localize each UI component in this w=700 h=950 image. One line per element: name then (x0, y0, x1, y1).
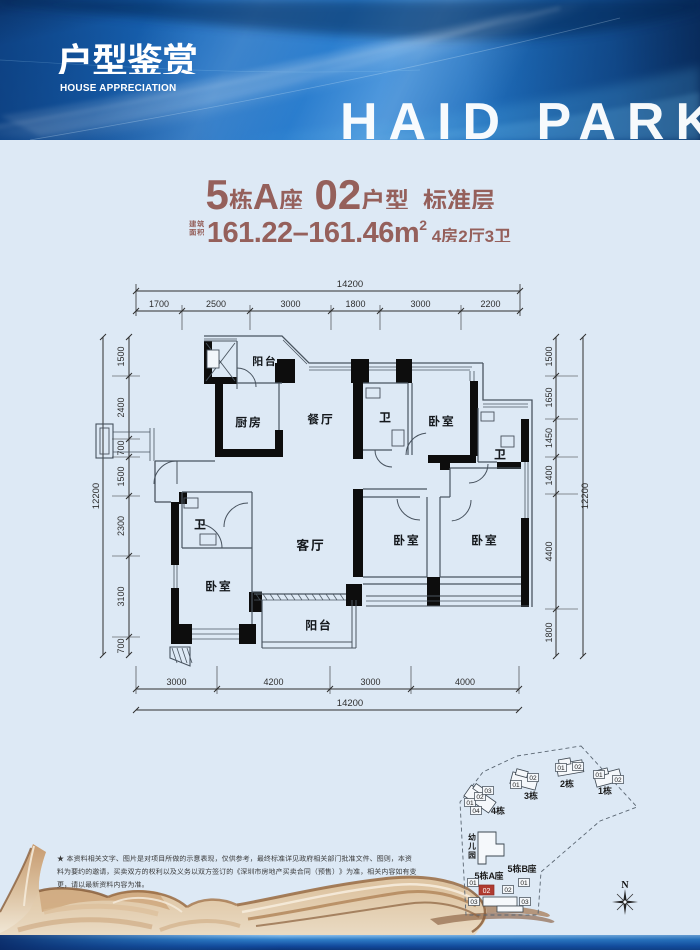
svg-text:3000: 3000 (166, 677, 186, 687)
svg-text:3100: 3100 (116, 586, 126, 606)
svg-text:700: 700 (116, 440, 126, 455)
svg-text:1800: 1800 (544, 622, 554, 642)
svg-text:3000: 3000 (360, 677, 380, 687)
svg-text:1500: 1500 (116, 466, 126, 486)
svg-text:2500: 2500 (206, 299, 226, 309)
svg-text:B: B (522, 864, 529, 874)
svg-text:3000: 3000 (410, 299, 430, 309)
svg-text:1: 1 (598, 786, 603, 796)
svg-text:2400: 2400 (116, 397, 126, 417)
svg-text:01: 01 (466, 800, 474, 807)
svg-text:02: 02 (476, 794, 484, 801)
svg-text:N: N (621, 880, 629, 891)
svg-text:A: A (489, 871, 496, 881)
svg-text:1500: 1500 (544, 346, 554, 366)
svg-text:1700: 1700 (149, 299, 169, 309)
svg-text:01: 01 (520, 880, 528, 887)
svg-text:02: 02 (504, 887, 512, 894)
svg-text:4: 4 (491, 806, 496, 816)
svg-text:03: 03 (470, 899, 478, 906)
svg-text:5: 5 (508, 864, 513, 874)
svg-text:4000: 4000 (455, 677, 475, 687)
svg-text:3000: 3000 (280, 299, 300, 309)
svg-text:03: 03 (484, 788, 492, 795)
svg-text:2: 2 (560, 779, 565, 789)
svg-text:01: 01 (469, 880, 477, 887)
svg-text:1500: 1500 (116, 346, 126, 366)
svg-text:1650: 1650 (544, 387, 554, 407)
svg-text:2300: 2300 (116, 516, 126, 536)
svg-text:02: 02 (483, 888, 491, 895)
svg-text:02: 02 (529, 775, 537, 782)
svg-text:04: 04 (472, 808, 480, 815)
svg-text:3: 3 (524, 791, 529, 801)
svg-text:01: 01 (512, 782, 520, 789)
svg-text:01: 01 (557, 765, 565, 772)
svg-text:2200: 2200 (480, 299, 500, 309)
svg-text:1400: 1400 (544, 465, 554, 485)
svg-text:12200: 12200 (580, 483, 591, 509)
svg-text:12200: 12200 (91, 483, 102, 509)
svg-text:4400: 4400 (544, 541, 554, 561)
svg-text:01: 01 (595, 772, 603, 779)
svg-text:02: 02 (614, 777, 622, 784)
svg-text:700: 700 (116, 638, 126, 653)
svg-text:1450: 1450 (544, 428, 554, 448)
svg-text:14200: 14200 (337, 698, 363, 709)
svg-text:03: 03 (521, 899, 529, 906)
svg-text:14200: 14200 (337, 279, 363, 290)
svg-text:1800: 1800 (345, 299, 365, 309)
svg-text:02: 02 (574, 764, 582, 771)
svg-text:4200: 4200 (263, 677, 283, 687)
